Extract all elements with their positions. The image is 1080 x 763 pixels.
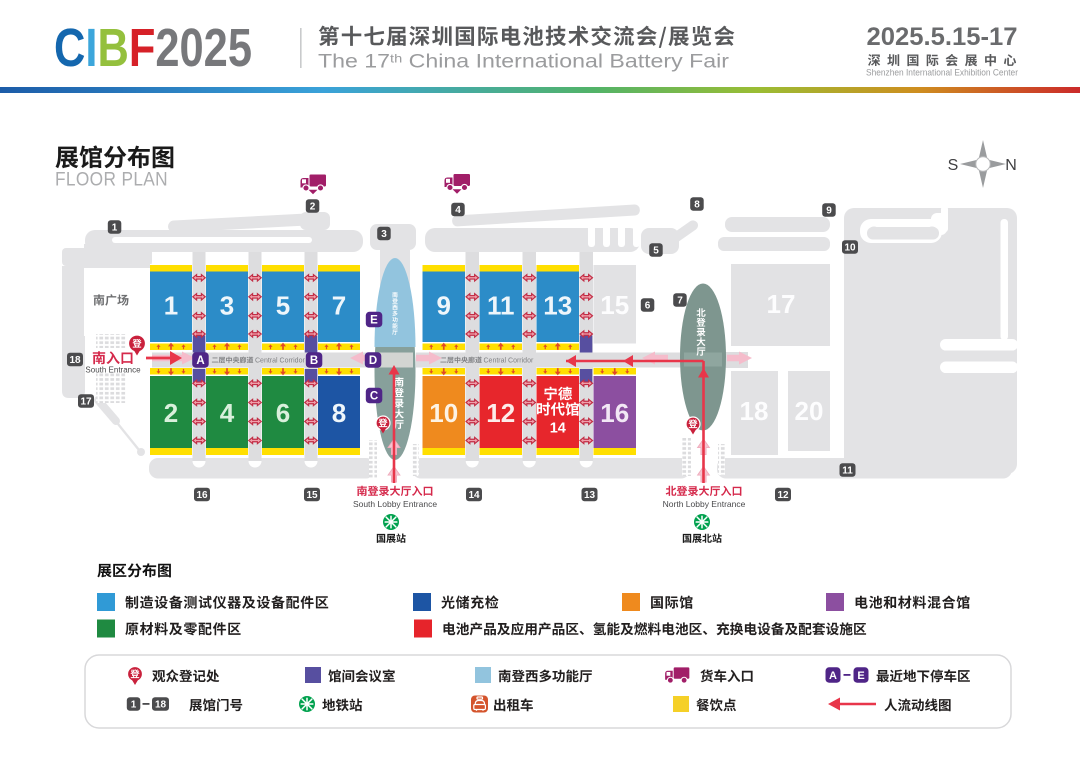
svg-text:12: 12 xyxy=(777,490,789,501)
svg-text:7: 7 xyxy=(677,296,683,307)
svg-text:18: 18 xyxy=(155,700,167,711)
svg-text:E: E xyxy=(370,315,378,327)
svg-text:15: 15 xyxy=(600,290,629,320)
svg-text:11: 11 xyxy=(487,291,515,321)
svg-text:18: 18 xyxy=(69,355,81,366)
svg-text:14: 14 xyxy=(468,490,480,501)
svg-text:North Lobby Entrance: North Lobby Entrance xyxy=(663,499,746,509)
svg-text:8: 8 xyxy=(332,398,346,428)
svg-text:9: 9 xyxy=(826,206,832,217)
svg-text:4: 4 xyxy=(220,398,235,428)
svg-text:1: 1 xyxy=(164,291,178,321)
svg-text:10: 10 xyxy=(844,243,856,254)
svg-text:20: 20 xyxy=(795,396,824,426)
svg-text:1: 1 xyxy=(112,223,118,234)
svg-text:14: 14 xyxy=(550,421,566,437)
svg-text:17: 17 xyxy=(80,397,92,408)
svg-text:17: 17 xyxy=(767,289,796,319)
svg-text:2: 2 xyxy=(310,202,316,213)
svg-text:S: S xyxy=(948,157,959,174)
svg-text:The 17th China International B: The 17th China International Battery Fai… xyxy=(318,52,730,73)
svg-text:C: C xyxy=(370,391,378,403)
svg-text:1: 1 xyxy=(131,700,137,711)
svg-text:A: A xyxy=(829,670,837,682)
svg-text:8: 8 xyxy=(694,200,700,211)
svg-text:South Entrance: South Entrance xyxy=(85,366,141,375)
svg-text:2025.5.15-17: 2025.5.15-17 xyxy=(867,23,1018,51)
svg-text:N: N xyxy=(1005,157,1017,174)
svg-text:16: 16 xyxy=(600,398,629,428)
svg-text:13: 13 xyxy=(543,291,572,321)
svg-text:6: 6 xyxy=(276,398,290,428)
svg-text:2: 2 xyxy=(164,398,178,428)
svg-text:South Lobby Entrance: South Lobby Entrance xyxy=(353,499,437,509)
svg-text:Central Corridor: Central Corridor xyxy=(484,358,534,365)
svg-text:4: 4 xyxy=(455,205,461,216)
svg-text:E: E xyxy=(857,670,864,682)
svg-text:16: 16 xyxy=(196,490,208,501)
svg-text:D: D xyxy=(369,355,377,367)
svg-text:15: 15 xyxy=(306,490,318,501)
svg-text:Central Corridor: Central Corridor xyxy=(255,358,305,365)
svg-text:3: 3 xyxy=(381,229,387,240)
svg-text:6: 6 xyxy=(645,301,651,312)
svg-text:13: 13 xyxy=(584,490,596,501)
svg-text:3: 3 xyxy=(220,291,234,321)
svg-text:A: A xyxy=(196,355,204,367)
svg-text:7: 7 xyxy=(332,291,346,321)
svg-text:11: 11 xyxy=(842,466,853,477)
svg-text:FLOOR PLAN: FLOOR PLAN xyxy=(55,169,168,191)
svg-text:18: 18 xyxy=(740,396,769,426)
svg-text:CIBF2025: CIBF2025 xyxy=(54,18,252,78)
svg-text:5: 5 xyxy=(653,246,659,257)
svg-text:5: 5 xyxy=(276,291,290,321)
svg-text:12: 12 xyxy=(486,398,515,428)
svg-text:9: 9 xyxy=(437,291,451,321)
svg-text:10: 10 xyxy=(429,398,458,428)
svg-text:B: B xyxy=(310,355,318,367)
svg-text:Shenzhen International Exhibit: Shenzhen International Exhibition Center xyxy=(866,68,1018,78)
